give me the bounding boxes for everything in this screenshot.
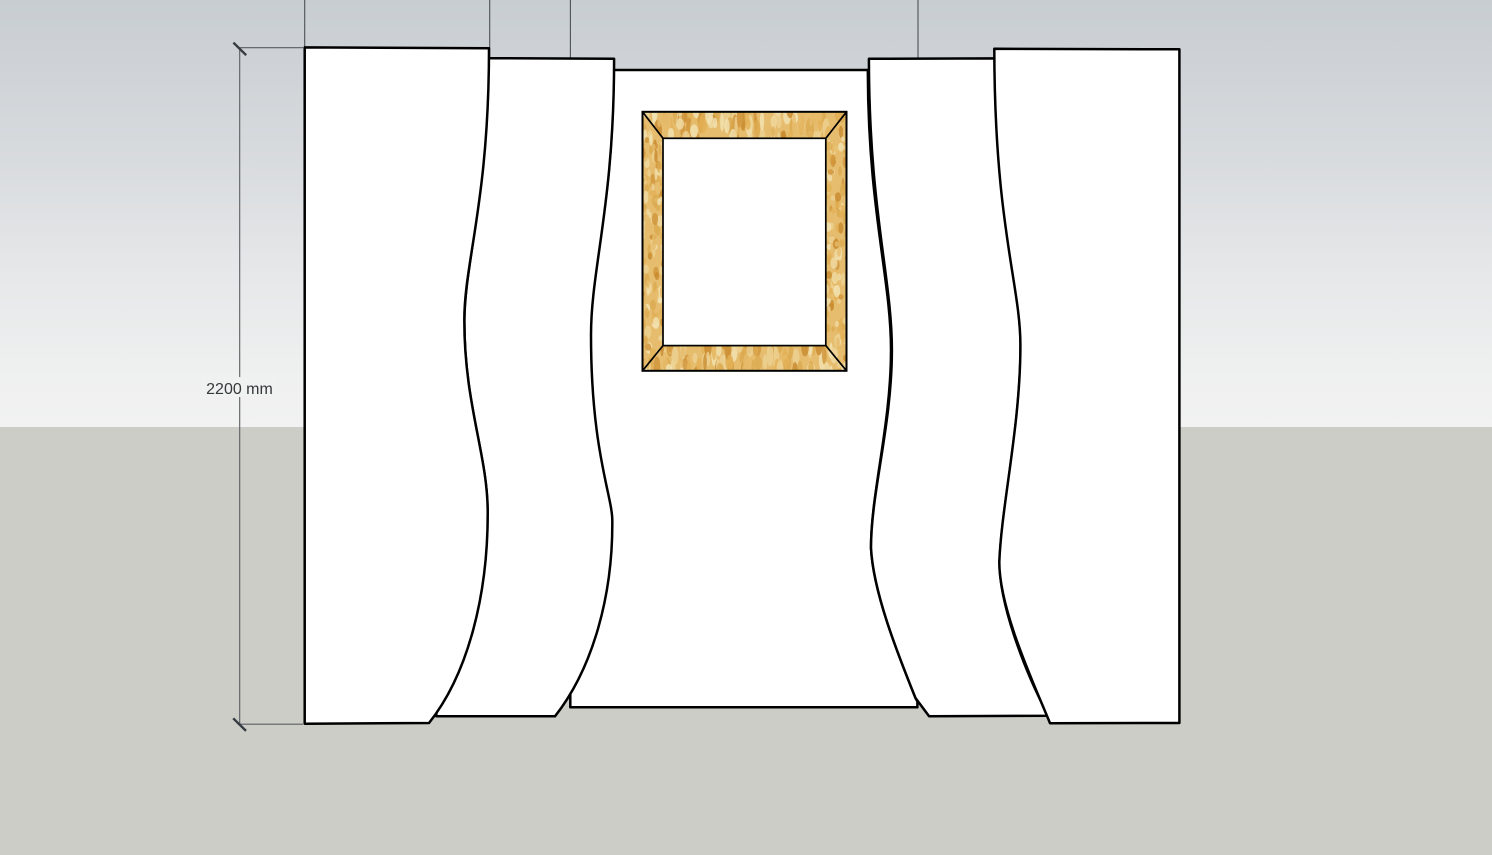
svg-text:2200 mm: 2200 mm <box>206 381 273 398</box>
